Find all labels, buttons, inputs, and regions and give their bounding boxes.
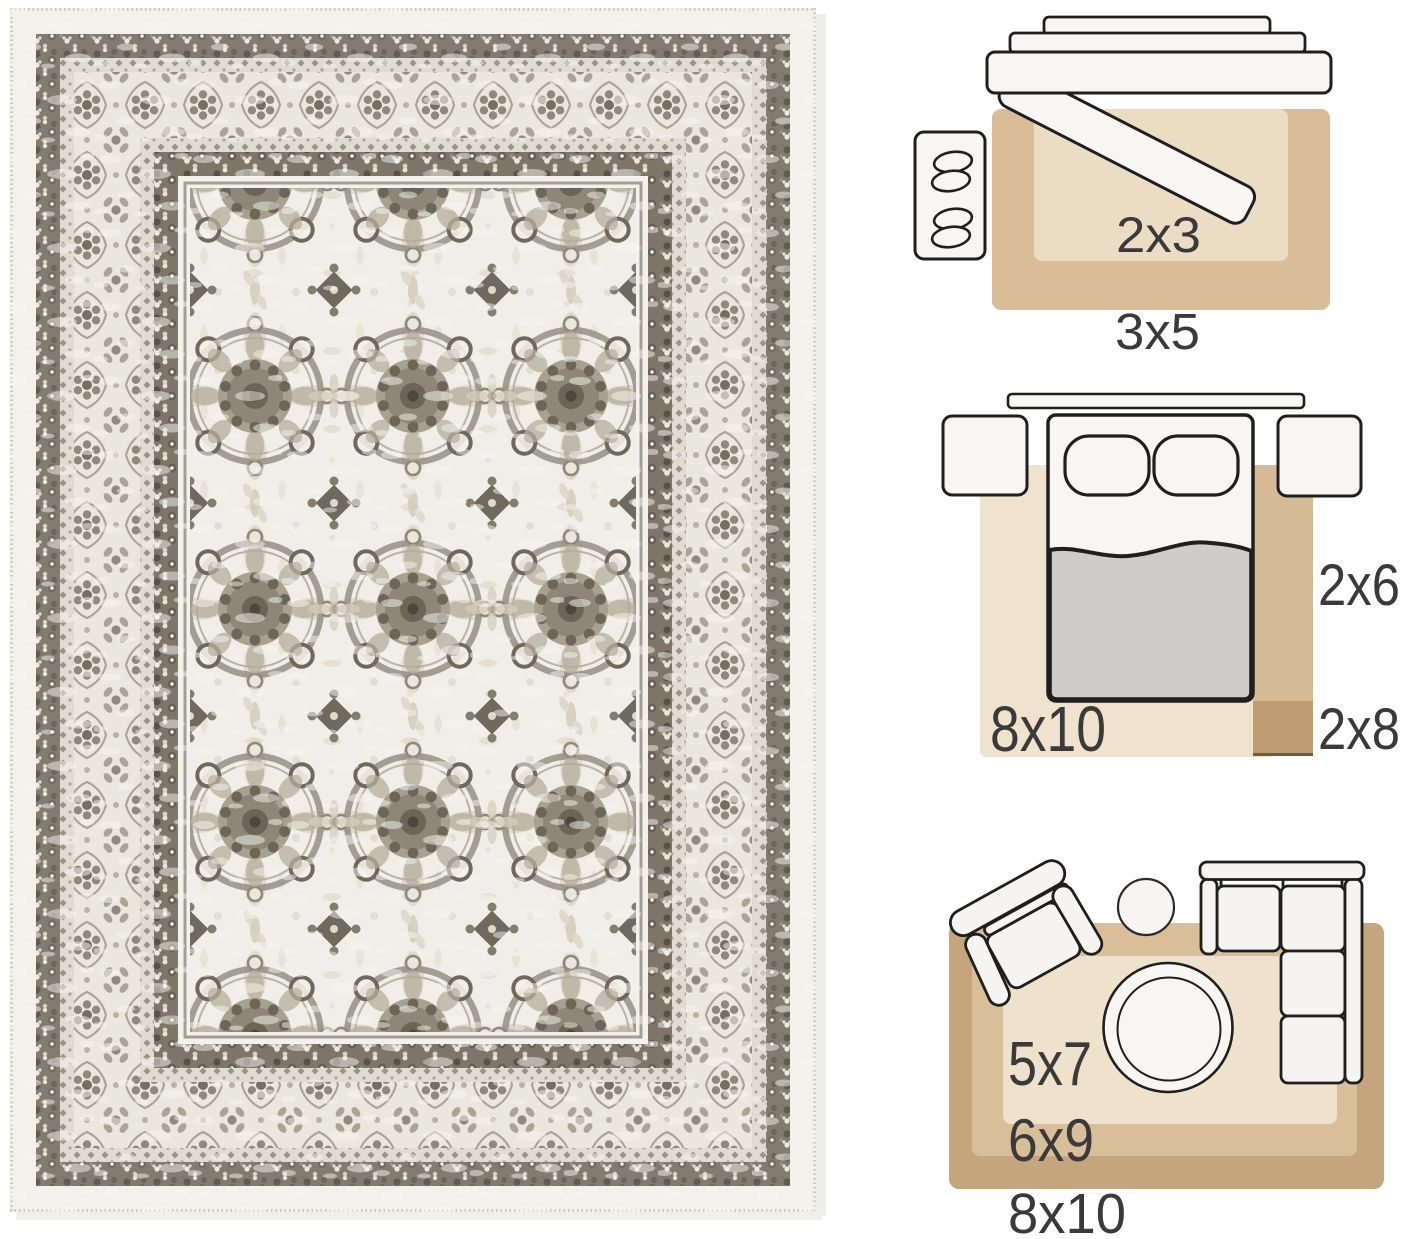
svg-text:8x10: 8x10 bbox=[1008, 1182, 1126, 1234]
svg-text:5x7: 5x7 bbox=[1008, 1030, 1092, 1099]
svg-text:3x5: 3x5 bbox=[1115, 303, 1200, 360]
svg-text:6x9: 6x9 bbox=[1008, 1107, 1094, 1174]
svg-text:8x10: 8x10 bbox=[990, 693, 1106, 765]
svg-text:2x8: 2x8 bbox=[1318, 697, 1400, 762]
svg-text:2x3: 2x3 bbox=[1116, 207, 1201, 263]
svg-text:2x6: 2x6 bbox=[1318, 553, 1400, 618]
